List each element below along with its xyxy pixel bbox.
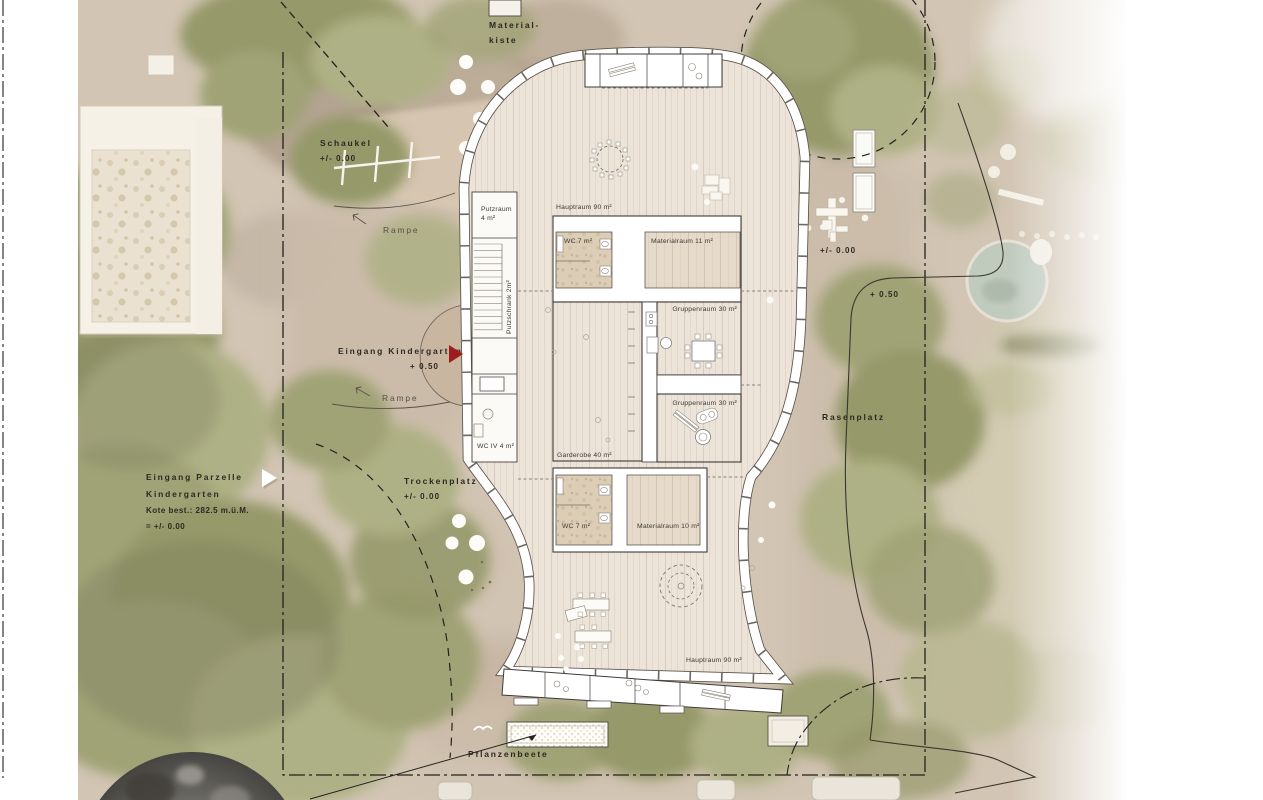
label-rampe-lower: Rampe (382, 393, 418, 403)
label-eingang-parzelle-3: Kote best.: 282.5 m.ü.M. (146, 506, 249, 515)
label-schaukel: Schaukel (320, 138, 372, 148)
label-gruppenraum-upper: Gruppenraum 30 m² (672, 306, 737, 313)
left-margin (0, 0, 78, 800)
label-materialraum-bottom: Materialraum 10 m² (637, 523, 700, 530)
label-wc-bottom: WC 7 m² (562, 523, 591, 530)
label-trockenplatz-level: +/- 0.00 (404, 492, 440, 501)
label-putzraum-area: 4 m² (481, 215, 496, 222)
label-wc-iv: WC IV 4 m² (477, 443, 515, 450)
label-schaukel-level: +/- 0.00 (320, 154, 356, 163)
room-garderobe (553, 302, 642, 461)
right-margin (1126, 0, 1263, 800)
site-plan-drawing: Putzraum 4 m² Putzschrank 2m² Hauptraum … (0, 0, 1263, 800)
room-materialraum-bottom (627, 475, 700, 545)
label-trockenplatz: Trockenplatz (404, 476, 478, 486)
entrance-bench (480, 377, 504, 391)
label-eingang-parzelle-1: Eingang Parzelle (146, 472, 243, 482)
top-alcove-rooms (585, 54, 722, 88)
label-eingang-kindergarten: Eingang Kindergarten (338, 346, 463, 356)
label-rasenplatz: Rasenplatz (822, 412, 885, 422)
label-hauptraum-top: Hauptraum 90 m² (556, 204, 612, 211)
label-level-courtyard: +/- 0.00 (820, 246, 856, 255)
label-gruppenraum-lower: Gruppenraum 30 m² (672, 400, 737, 407)
label-eingang-parzelle-2: Kindergarten (146, 489, 221, 499)
label-pflanzenbeete: Pflanzenbeete (468, 749, 549, 759)
label-level-terrace: + 0.50 (870, 290, 899, 299)
label-putzschrank: Putzschrank 2m² (506, 279, 513, 334)
label-putzraum: Putzraum (481, 206, 512, 213)
label-wc-top: WC 7 m² (564, 238, 593, 245)
label-hauptraum-bottom: Hauptraum 90 m² (686, 657, 742, 664)
label-eingang-kindergarten-level: + 0.50 (410, 362, 439, 371)
label-eingang-parzelle-4: = +/- 0.00 (146, 522, 185, 531)
label-materialraum-top: Materialraum 11 m² (651, 238, 714, 245)
label-materialkiste-2: kiste (489, 35, 517, 45)
site-plan: Putzraum 4 m² Putzschrank 2m² Hauptraum … (0, 0, 1263, 800)
label-materialkiste-1: Material- (489, 20, 540, 30)
label-rampe-upper: Rampe (383, 225, 419, 235)
label-garderobe: Garderobe 40 m² (557, 452, 612, 459)
